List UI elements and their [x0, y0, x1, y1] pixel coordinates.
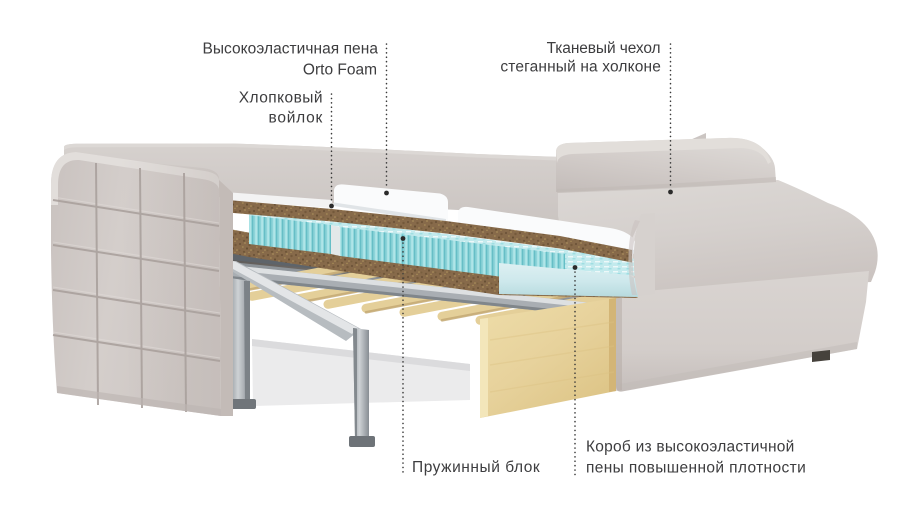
svg-text:Тканевый чехол: Тканевый чехол	[547, 40, 661, 57]
svg-text:Orto Foam: Orto Foam	[303, 62, 377, 79]
svg-text:войлок: войлок	[269, 110, 323, 127]
svg-text:стеганный на холконе: стеганный на холконе	[500, 59, 661, 76]
svg-text:Хлопковый: Хлопковый	[239, 90, 323, 107]
svg-text:Высокоэластичная пена: Высокоэластичная пена	[202, 41, 378, 58]
svg-text:Короб из высокоэластичной: Короб из высокоэластичной	[586, 439, 795, 456]
svg-text:Пружинный блок: Пружинный блок	[412, 459, 540, 476]
svg-text:пены повышенной плотности: пены повышенной плотности	[586, 460, 806, 477]
